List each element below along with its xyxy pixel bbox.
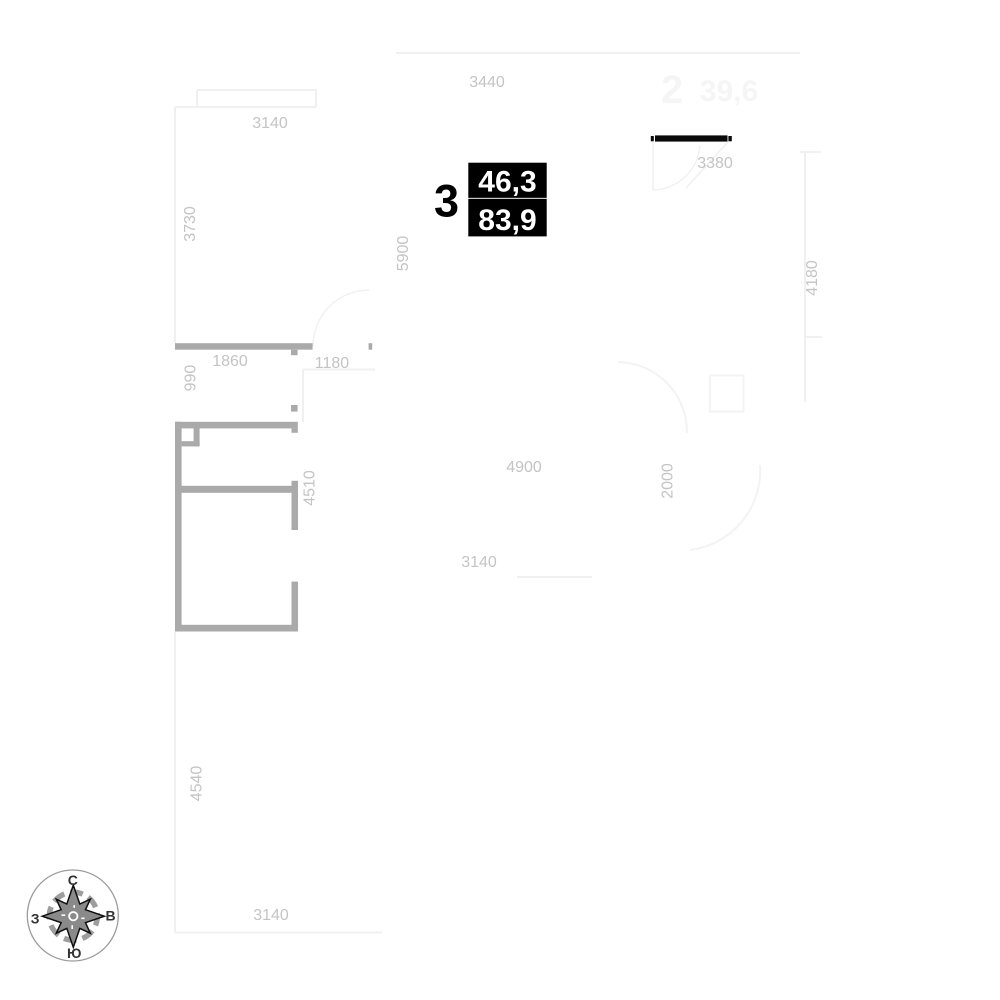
svg-text:4900: 4900 <box>506 459 542 476</box>
svg-text:39,6: 39,6 <box>700 75 758 108</box>
svg-text:5900: 5900 <box>395 236 412 272</box>
svg-text:3440: 3440 <box>469 74 505 91</box>
svg-text:3140: 3140 <box>461 554 497 571</box>
svg-text:С: С <box>68 872 78 888</box>
svg-text:990: 990 <box>182 365 199 392</box>
svg-text:3380: 3380 <box>697 155 733 172</box>
svg-text:1180: 1180 <box>315 355 350 372</box>
svg-text:Ю: Ю <box>67 945 81 961</box>
svg-text:2000: 2000 <box>659 463 676 499</box>
svg-text:46,3: 46,3 <box>478 166 536 199</box>
svg-text:3140: 3140 <box>252 115 288 132</box>
svg-text:1860: 1860 <box>212 353 248 370</box>
svg-text:83,9: 83,9 <box>478 204 536 237</box>
svg-text:3: 3 <box>434 176 459 227</box>
svg-text:2: 2 <box>661 68 683 112</box>
svg-text:4180: 4180 <box>804 260 821 296</box>
svg-text:З: З <box>31 911 40 927</box>
svg-text:4540: 4540 <box>189 766 206 802</box>
svg-text:3140: 3140 <box>253 907 289 924</box>
svg-text:3730: 3730 <box>182 206 199 242</box>
svg-text:В: В <box>105 908 115 924</box>
svg-text:4510: 4510 <box>302 470 319 506</box>
